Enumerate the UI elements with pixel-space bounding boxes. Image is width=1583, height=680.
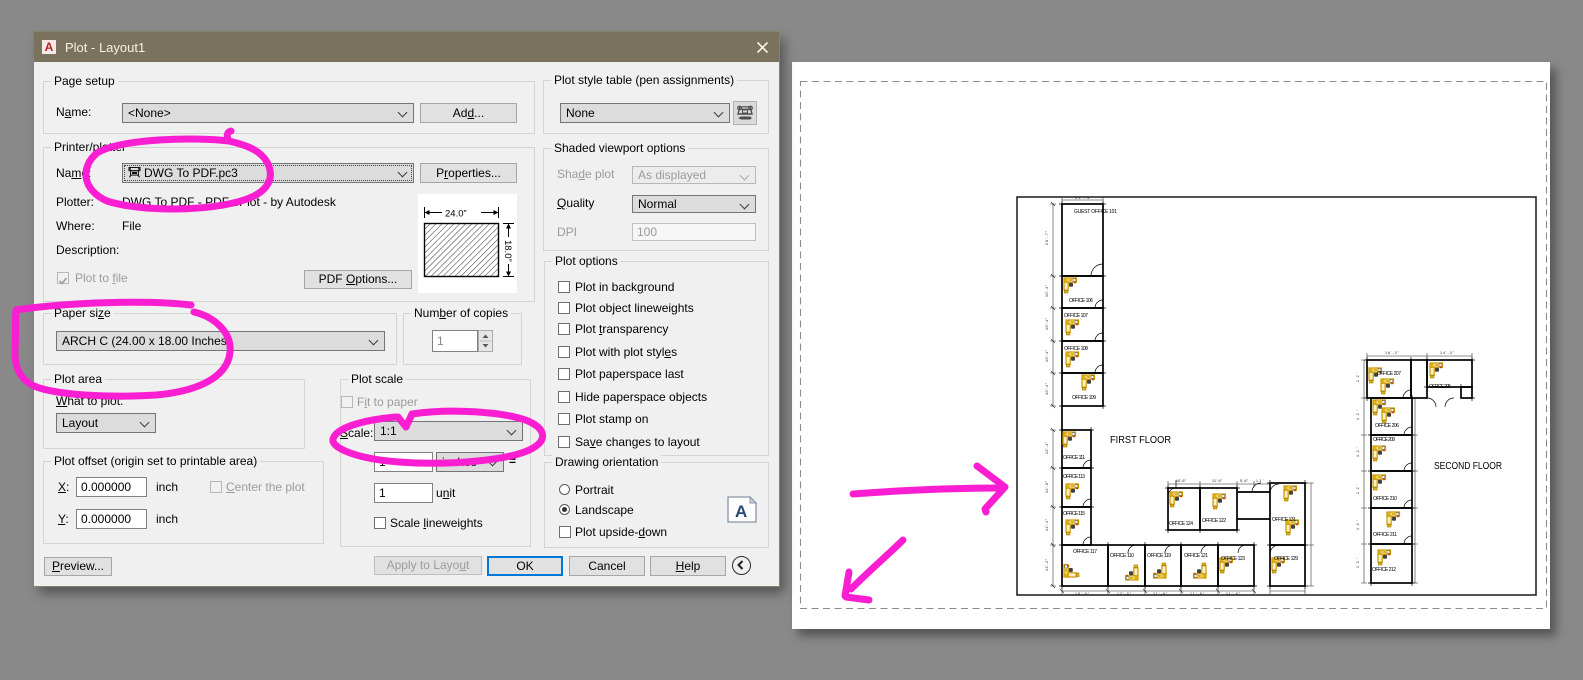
svg-text:13'-2": 13'-2" [1045,558,1049,571]
svg-text:OFFICE 106: OFFICE 106 [1069,298,1093,304]
svg-text:11'-9": 11'-9" [1190,592,1205,596]
svg-text:OFFICE 117: OFFICE 117 [1073,549,1097,555]
svg-text:26'-7": 26'-7" [1045,230,1049,245]
svg-text:OFFICE 113: OFFICE 113 [1063,474,1085,480]
svg-text:12': 12' [1356,447,1360,457]
svg-text:10'-4": 10'-4" [1045,284,1049,297]
svg-text:OFFICE 205: OFFICE 205 [1429,384,1451,390]
svg-text:10'-6": 10'-6" [1176,479,1187,483]
svg-text:14'-0": 14'-0" [1440,351,1455,355]
svg-text:12'-6": 12'-6" [1045,480,1049,493]
svg-text:OFFICE 110: OFFICE 110 [1110,553,1134,559]
svg-text:12'-0": 12'-0" [1117,592,1132,596]
svg-text:OFFICE 107: OFFICE 107 [1064,313,1088,319]
svg-text:OFFICE 123: OFFICE 123 [1221,556,1245,562]
svg-text:15'-0": 15'-0" [1075,592,1090,596]
svg-text:11'-9": 11'-9" [1226,592,1241,596]
svg-text:OFFICE 108: OFFICE 108 [1064,346,1088,352]
svg-text:OFFICE 209: OFFICE 209 [1373,437,1395,443]
svg-text:12': 12' [1356,410,1360,420]
svg-text:5'-6": 5'-6" [1240,479,1249,483]
svg-text:OFFICE 121: OFFICE 121 [1184,553,1208,559]
svg-text:16'-2": 16'-2" [1385,351,1400,355]
svg-text:OFFICE 115: OFFICE 115 [1063,511,1085,517]
svg-text:OFFICE 129: OFFICE 129 [1274,556,1298,562]
svg-text:10'-4": 10'-4" [1045,382,1049,395]
svg-text:FIRST FLOOR: FIRST FLOOR [1110,434,1171,446]
svg-text:24.0”: 24.0” [445,209,467,220]
svg-text:A: A [735,502,747,521]
svg-text:18.0”: 18.0” [502,240,513,262]
svg-text:11'-9": 11'-9" [1212,479,1223,483]
svg-text:12': 12' [1356,372,1360,382]
svg-text:OFFICE 207: OFFICE 207 [1377,371,1401,377]
svg-text:OFFICE 111: OFFICE 111 [1063,455,1085,461]
svg-text:12'-4": 12'-4" [1045,518,1049,531]
svg-text:GUEST OFFICE 101: GUEST OFFICE 101 [1074,209,1117,215]
svg-text:OFFICE 119: OFFICE 119 [1147,553,1171,559]
svg-text:OFFICE 122: OFFICE 122 [1202,518,1226,524]
svg-text:SECOND FLOOR: SECOND FLOOR [1434,460,1502,472]
svg-text:OFFICE 131: OFFICE 131 [1272,517,1296,523]
svg-text:OFFICE 210: OFFICE 210 [1373,496,1397,502]
svg-text:10'-4": 10'-4" [1045,349,1049,362]
svg-text:12': 12' [1356,484,1360,494]
svg-text:10'-4": 10'-4" [1045,317,1049,330]
svg-text:13': 13' [1356,558,1360,568]
svg-text:OFFICE 206: OFFICE 206 [1375,423,1399,429]
svg-text:11'-9": 11'-9" [1153,592,1168,596]
svg-text:OFFICE 211: OFFICE 211 [1373,532,1397,538]
svg-text:OFFICE 124: OFFICE 124 [1169,521,1193,527]
svg-text:OFFICE 109: OFFICE 109 [1072,395,1096,401]
svg-text:12': 12' [1356,520,1360,530]
svg-text:12'-4": 12'-4" [1045,441,1049,454]
svg-text:OFFICE 212: OFFICE 212 [1372,567,1396,573]
svg-text:32'-4": 32'-4" [1075,196,1093,200]
svg-text:11': 11' [1256,479,1264,483]
